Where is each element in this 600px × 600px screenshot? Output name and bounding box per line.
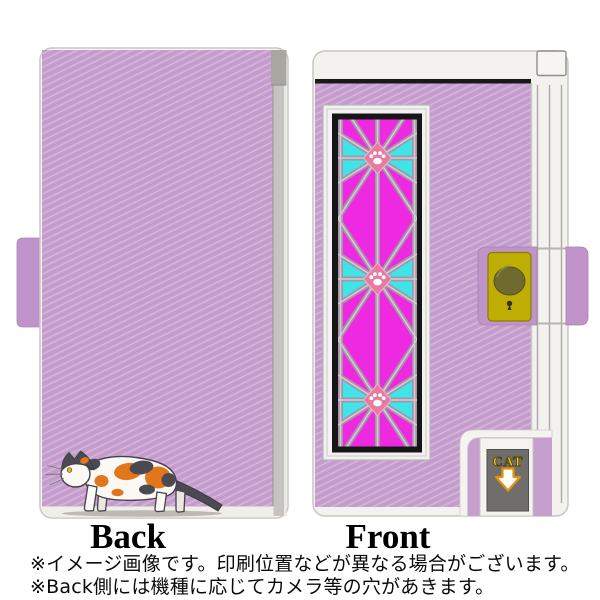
back-view-label: Back xyxy=(28,519,228,555)
clasp-end-cap xyxy=(566,247,588,325)
cat-far-rear-leg xyxy=(176,490,185,512)
back-case-view xyxy=(17,48,288,518)
front-case-view: CAT xyxy=(313,51,588,516)
caption-line-1: ※イメージ画像です。印刷位置などが異なる場合がございます。 xyxy=(30,553,600,575)
spine-top-tab xyxy=(271,50,287,85)
product-image-canvas: CAT Back Front ※イメージ画像です。印刷位置などが異なる場合がござ… xyxy=(0,0,600,600)
clasp-tab-back xyxy=(17,238,40,327)
clasp-band xyxy=(478,247,588,325)
door-knob xyxy=(494,267,525,295)
stained-glass-window xyxy=(323,98,430,461)
leather-texture xyxy=(42,50,273,506)
caption-line-2: ※Back側には機種に応じてカメラ等の穴があきます。 xyxy=(30,576,600,598)
cat-near-rear-leg xyxy=(155,492,167,512)
cat-eye xyxy=(67,468,72,473)
camera-cutout-square xyxy=(537,51,566,76)
phone-case-illustration: CAT xyxy=(0,0,600,600)
cat-door: CAT xyxy=(460,430,552,516)
top-band-line xyxy=(315,79,531,84)
front-view-label: Front xyxy=(288,519,488,555)
